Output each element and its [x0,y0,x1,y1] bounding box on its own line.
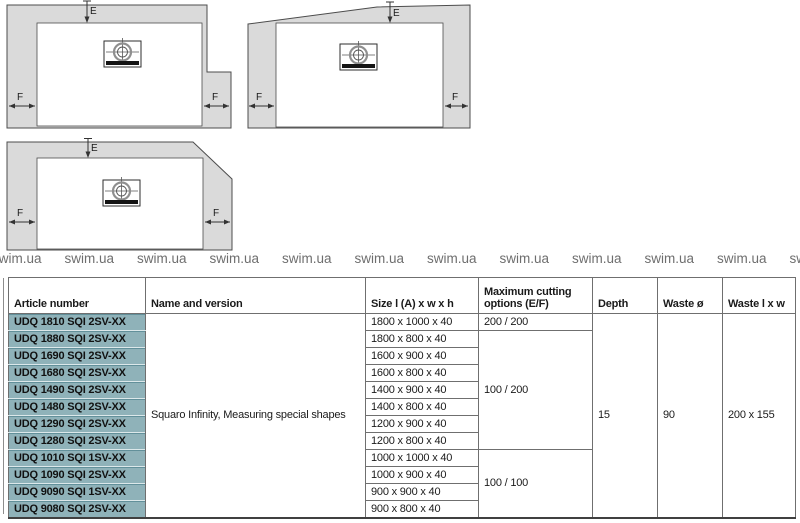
article-cell: UDQ 1490 SQI 2SV-XX [9,382,146,399]
tray-surface [37,23,202,126]
article-cell: UDQ 1680 SQI 2SV-XX [9,365,146,382]
watermark-text: swim.ua [355,251,405,267]
watermark-text: swim.ua [137,251,187,267]
size-cell: 1000 x 1000 x 40 [366,450,479,467]
article-cell: UDQ 1880 SQI 2SV-XX [9,331,146,348]
header-cutting-options: Maximum cutting options (E/F) [479,278,593,314]
article-cell: UDQ 1090 SQI 2SV-XX [9,467,146,484]
size-cell: 1000 x 900 x 40 [366,467,479,484]
depth-cell: 15 [593,314,658,518]
watermark-text: swim.ua [282,251,332,267]
name-version-cell: Squaro Infinity, Measuring special shape… [146,314,366,518]
header-size: Size l (A) x w x h [366,278,479,314]
size-cell: 1200 x 800 x 40 [366,433,479,450]
f-label: F [212,92,218,103]
watermark-text: swim.ua [500,251,550,267]
watermark-text: swim.ua [645,251,695,267]
cutting-cell: 100 / 200 [479,331,593,450]
catalog-page: E F F E F F [0,0,800,523]
size-cell: 1400 x 800 x 40 [366,399,479,416]
article-cell: UDQ 1480 SQI 2SV-XX [9,399,146,416]
watermark-text: swim.ua [572,251,622,267]
drain-icon [340,41,377,70]
watermark-text: swim.ua [427,251,477,267]
size-cell: 900 x 900 x 40 [366,484,479,501]
watermark-text: swim.ua [790,251,800,267]
header-waste-diameter: Waste ø [658,278,723,314]
diagram-stepped-right: E F F [0,0,240,135]
page-edge-line [3,278,4,514]
watermark-text: swim.ua [0,251,42,267]
f-label: F [452,92,458,103]
watermark-text: swim.ua [210,251,260,267]
cutting-cell: 100 / 100 [479,450,593,518]
watermark-text: swim.ua [65,251,115,267]
size-cell: 1200 x 900 x 40 [366,416,479,433]
article-cell: UDQ 1280 SQI 2SV-XX [9,433,146,450]
cutting-cell: 200 / 200 [479,314,593,331]
article-cell: UDQ 1690 SQI 2SV-XX [9,348,146,365]
header-name-version: Name and version [146,278,366,314]
size-cell: 1800 x 800 x 40 [366,331,479,348]
article-cell: UDQ 1810 SQI 2SV-XX [9,314,146,331]
article-cell: UDQ 9080 SQI 2SV-XX [9,501,146,518]
tray-surface [276,23,443,127]
e-label: E [393,8,400,19]
size-cell: 1600 x 900 x 40 [366,348,479,365]
spec-table: Article number Name and version Size l (… [8,277,796,519]
size-cell: 1400 x 900 x 40 [366,382,479,399]
f-label: F [17,92,23,103]
e-label: E [91,143,98,154]
diagram-chamfered-corner: E F F [0,138,240,255]
f-label: F [256,92,262,103]
drain-icon [103,177,140,206]
size-cell: 1600 x 800 x 40 [366,365,479,382]
article-cell: UDQ 1290 SQI 2SV-XX [9,416,146,433]
drain-icon [104,38,141,67]
article-cell: UDQ 1010 SQI 1SV-XX [9,450,146,467]
table-row: UDQ 1810 SQI 2SV-XX Squaro Infinity, Mea… [9,314,796,331]
header-depth: Depth [593,278,658,314]
watermark-row: swim.uaswim.uaswim.uaswim.uaswim.uaswim.… [0,251,800,268]
size-cell: 1800 x 1000 x 40 [366,314,479,331]
watermark-text: swim.ua [717,251,767,267]
e-label: E [90,6,97,17]
header-waste-lxw: Waste l x w [723,278,796,314]
size-cell: 900 x 800 x 40 [366,501,479,518]
waste-diameter-cell: 90 [658,314,723,518]
f-label: F [213,208,219,219]
header-article-number: Article number [9,278,146,314]
article-cell: UDQ 9090 SQI 1SV-XX [9,484,146,501]
diagram-sloped-top: E F F [240,0,480,135]
header-row: Article number Name and version Size l (… [9,278,796,314]
waste-lxw-cell: 200 x 155 [723,314,796,518]
f-label: F [17,208,23,219]
